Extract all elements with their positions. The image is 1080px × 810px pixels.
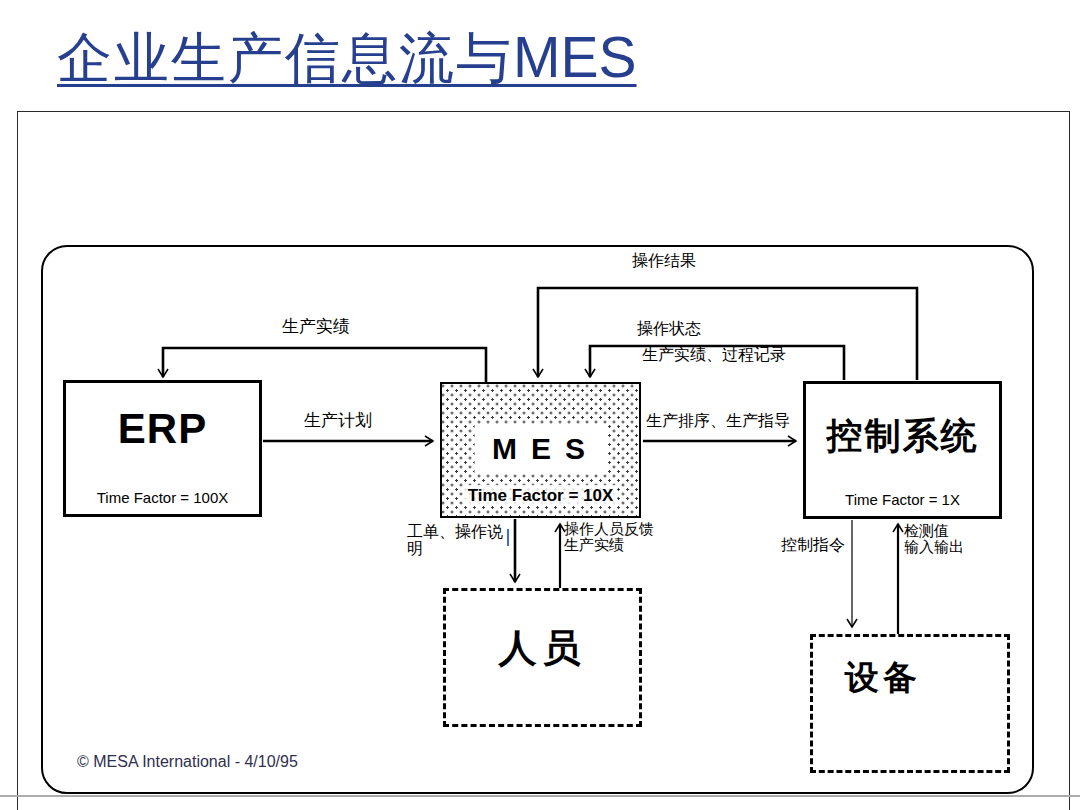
node-erp: ERP Time Factor = 100X xyxy=(63,380,262,517)
edge-label-production-plan: 生产计划 xyxy=(304,409,372,432)
node-mes: MES Time Factor = 10X xyxy=(440,382,641,518)
edge-label-work-orders: 工单、操作说明 xyxy=(407,523,509,557)
edge-label-operator-feedback: 操作人员反馈 生产实绩 xyxy=(564,521,654,553)
edge-label-production-sequencing: 生产排序、生产指导 xyxy=(646,411,790,432)
node-control-system-time-factor: Time Factor = 1X xyxy=(806,491,999,508)
edge-label-operation-status: 操作状态 xyxy=(637,319,701,340)
slide: 企业生产信息流与MES ERP Time Factor = 100X MES T… xyxy=(0,0,1080,810)
node-equipment: 设备 xyxy=(810,634,1010,773)
node-erp-label: ERP xyxy=(66,405,259,453)
node-mes-time-factor-wrap: Time Factor = 10X xyxy=(442,486,639,506)
node-mes-time-factor: Time Factor = 10X xyxy=(464,485,618,506)
edge-label-operator-feedback-line2: 生产实绩 xyxy=(564,537,654,553)
edge-label-measured-values: 检测值 输入输出 xyxy=(904,523,964,555)
edge-label-measured-values-line1: 检测值 xyxy=(904,523,964,539)
node-personnel-label: 人员 xyxy=(446,623,639,674)
node-personnel: 人员 xyxy=(443,588,642,727)
node-erp-time-factor: Time Factor = 100X xyxy=(66,489,259,506)
edge-label-control-commands: 控制指令 xyxy=(781,535,845,556)
edge-label-operator-feedback-line1: 操作人员反馈 xyxy=(564,521,654,537)
page-title-mes: MES xyxy=(513,25,637,89)
node-mes-label: MES xyxy=(474,424,607,474)
text-cursor xyxy=(507,529,509,546)
edge-label-operation-results: 操作结果 xyxy=(632,251,696,272)
edge-label-production-results: 生产实绩 xyxy=(282,315,350,338)
page-title: 企业生产信息流与MES xyxy=(57,22,637,96)
node-control-system: 控制系统 Time Factor = 1X xyxy=(803,381,1002,519)
node-control-system-label: 控制系统 xyxy=(806,412,999,461)
copyright-text: © MESA International - 4/10/95 xyxy=(77,753,298,771)
slide-bottom-edge xyxy=(0,795,1080,797)
node-equipment-label: 设备 xyxy=(845,655,921,701)
edge-label-measured-values-line2: 输入输出 xyxy=(904,539,964,555)
edge-label-production-records: 生产实绩、过程记录 xyxy=(642,345,786,366)
page-title-chinese: 企业生产信息流与 xyxy=(57,28,513,89)
